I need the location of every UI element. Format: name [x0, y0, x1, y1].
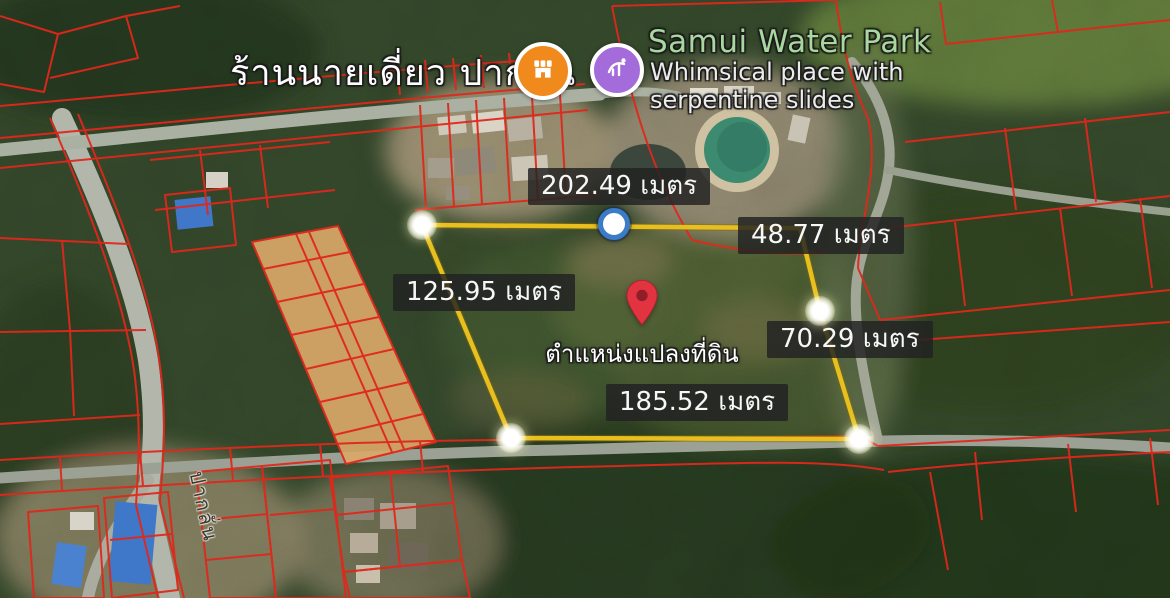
road-name-label: ปากลั่น [181, 468, 227, 545]
measurement-value: 70.29 เมตร [780, 324, 920, 354]
measurement-value: 48.77 เมตร [751, 220, 891, 250]
waterslide-icon [605, 56, 629, 84]
midpoint-handle-top-edge[interactable] [598, 208, 630, 240]
waterpark-poi-marker[interactable] [590, 43, 644, 97]
storefront-icon [530, 56, 556, 86]
store-poi-marker[interactable] [514, 42, 572, 100]
vertex-handle-east[interactable] [805, 296, 835, 326]
measurement-value: 125.95 เมตร [406, 277, 562, 307]
measurement-chip-bottom: 185.52 เมตร [606, 384, 788, 421]
vertex-handle-southwest[interactable] [496, 423, 526, 453]
measurement-value: 202.49 เมตร [541, 171, 697, 201]
measurement-chip-left: 125.95 เมตร [393, 274, 575, 311]
measurement-value: 185.52 เมตร [619, 387, 775, 417]
location-pin-icon [625, 279, 659, 327]
plot-pin-label: ตำแหน่งแปลงที่ดิน [545, 334, 738, 373]
vertex-handle-southeast[interactable] [844, 424, 874, 454]
measurement-chip-right: 70.29 เมตร [767, 321, 933, 358]
plot-pin-marker[interactable] [625, 279, 659, 327]
poi-label-waterpark-description: Whimsical place with serpentine slides [650, 58, 920, 114]
map-canvas[interactable]: ร้านนายเดี่ยว ปากลั่น [0, 0, 1170, 598]
poi-label-waterpark-name[interactable]: Samui Water Park [648, 24, 931, 60]
vertex-handle-northwest[interactable] [407, 210, 437, 240]
measurement-chip-top: 202.49 เมตร [528, 168, 710, 205]
measurement-chip-upper-right: 48.77 เมตร [738, 217, 904, 254]
labels-overlay: ร้านนายเดี่ยว ปากลั่น [0, 0, 1170, 598]
